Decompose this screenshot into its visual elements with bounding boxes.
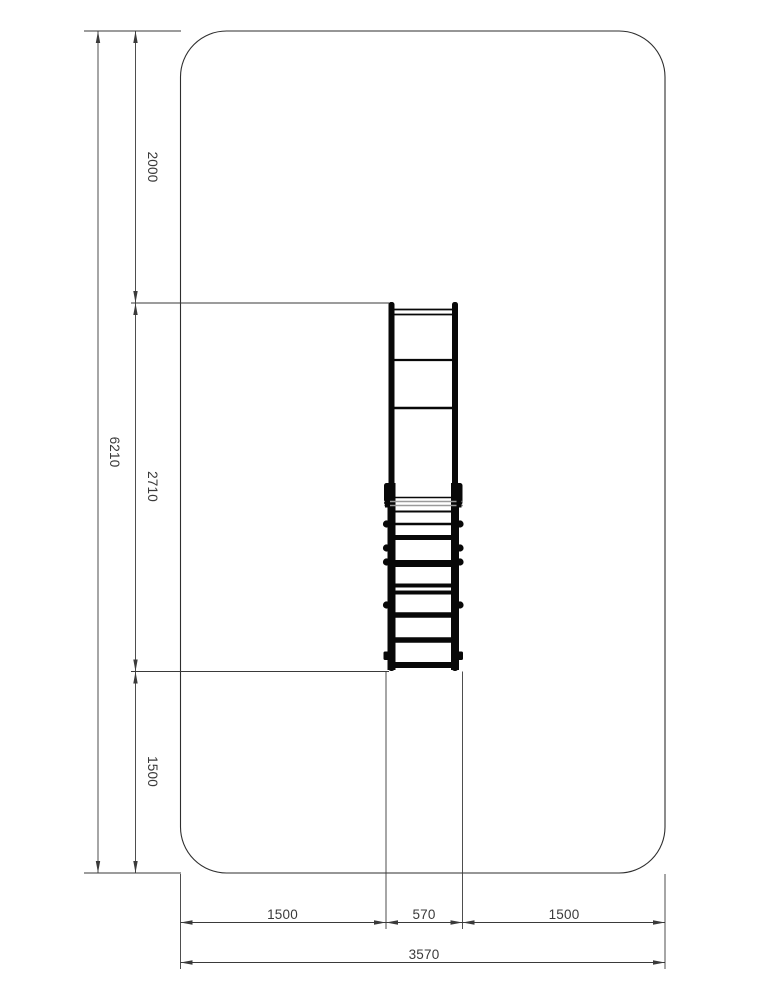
fastener-bump [383, 520, 390, 527]
platform-edge-cap-left [385, 497, 390, 508]
dim-label-equipment-length: 2710 [145, 471, 160, 502]
ladder-end-tab-right [457, 652, 463, 661]
safety-zone-outline [181, 31, 666, 873]
dimension-line-network [84, 31, 665, 969]
ladder-rungs [388, 310, 459, 666]
arrowhead [451, 920, 463, 924]
dim-label-bottom-clearance: 1500 [145, 756, 160, 787]
arrowhead [374, 920, 386, 924]
fastener-bump [456, 520, 463, 527]
arrowhead [133, 672, 137, 684]
fastener-bump [383, 544, 390, 551]
dim-label-top-clearance: 2000 [145, 152, 160, 183]
arrowhead [653, 920, 665, 924]
arrowhead [96, 31, 100, 43]
dim-label-overall-height: 6210 [107, 437, 122, 468]
fastener-bump [456, 544, 463, 551]
ladder-equipment [383, 302, 464, 671]
fastener-bump [383, 558, 390, 565]
dimension-arrowheads [96, 31, 665, 965]
arrowhead [181, 960, 193, 964]
technical-drawing-page: 6210 2000 2710 1500 1500 570 1500 3570 [0, 0, 772, 1000]
arrowhead [463, 920, 475, 924]
fastener-bump [456, 601, 463, 608]
arrowhead [653, 960, 665, 964]
arrowhead [133, 660, 137, 672]
arrowhead [133, 31, 137, 43]
arrowhead [133, 291, 137, 303]
arrowhead [96, 861, 100, 873]
dim-label-overall-width: 3570 [409, 947, 440, 962]
dim-label-equipment-width: 570 [412, 907, 435, 922]
technical-drawing-canvas: 6210 2000 2710 1500 1500 570 1500 3570 [0, 0, 772, 1000]
ladder-end-tab-left [384, 652, 390, 661]
dimension-labels: 6210 2000 2710 1500 1500 570 1500 3570 [107, 152, 579, 962]
platform-edge-cap-right [457, 497, 462, 508]
dim-label-left-clearance: 1500 [267, 907, 298, 922]
arrowhead [181, 920, 193, 924]
arrowhead [133, 303, 137, 315]
dim-label-right-clearance: 1500 [549, 907, 580, 922]
arrowhead [133, 861, 137, 873]
fastener-bump [383, 601, 390, 608]
arrowhead [386, 920, 398, 924]
fastener-bump [456, 558, 463, 565]
